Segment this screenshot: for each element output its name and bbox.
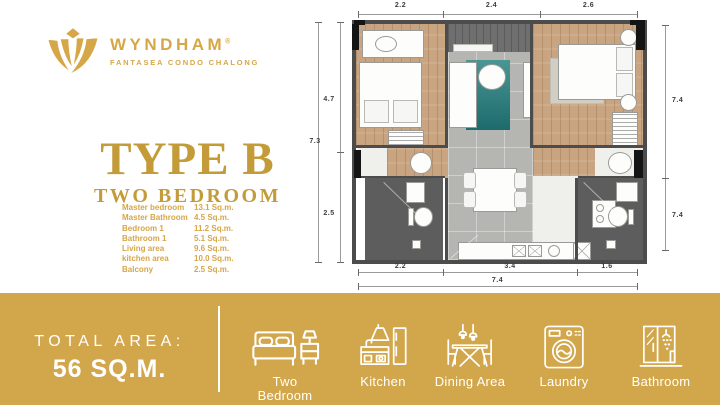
dimension-tick [662,25,669,26]
dimension-tick [337,262,344,263]
dim-top: 2.6 [540,2,637,9]
wall [445,178,448,264]
floor-plan: 2.2 2.4 2.6 7.3 4.7 2.5 7.4 7.4 2.2 3.4 … [300,0,718,295]
wall-black-segment [354,150,361,178]
dim-left-total: 7.3 [300,138,330,145]
dim-left: 4.7 [316,96,342,103]
feature-label: Laundry [539,375,588,389]
dimension-tick [662,178,669,179]
dimension-tick [358,283,359,290]
feature-label: Kitchen [360,375,405,389]
feature-label: Dining Area [435,375,506,389]
feature-laundry: Laundry [519,323,609,389]
dimension-line [358,14,637,15]
dim-right: 7.4 [672,212,702,219]
shower-icon [637,323,685,371]
kitchen-icon [356,323,411,371]
feature-bathroom: Bathroom [616,323,706,389]
dimension-line [358,272,637,273]
feature-label: Two Bedroom [248,375,322,404]
dimension-line [340,22,341,262]
room-row: Master bedroom13.1 Sq.m. [122,203,272,213]
wall [352,176,445,178]
feature-label: Bathroom [632,375,691,389]
washing-machine-icon [540,323,588,371]
footer-band: TOTAL AREA: 56 SQ.M. Two Bedroom [0,293,720,405]
wall [530,20,533,148]
wall [445,20,448,148]
dimension-tick [637,283,638,290]
dimension-tick [443,11,444,18]
room-row: Master Bathroom4.5 Sq.m. [122,213,272,223]
unit-heading: TYPE B TWO BEDROOM [80,136,295,208]
room-row: Living area9.6 Sq.m. [122,244,272,254]
wall [575,178,578,260]
feature-kitchen: Kitchen [338,323,428,389]
brand-subtitle: FANTASEA CONDO CHALONG [110,58,259,67]
dining-area-icon [444,323,495,371]
wall-black-segment [634,150,643,178]
divider [218,306,220,392]
dimension-tick [358,11,359,18]
wall-black-segment [354,20,365,25]
unit-type-title: TYPE B [80,136,295,183]
dimension-tick [337,22,344,23]
brand-text: WYNDHAM® FANTASEA CONDO CHALONG [110,35,259,67]
wall [352,145,448,148]
dim-bottom-total: 7.4 [358,277,637,284]
dimension-line [665,25,666,250]
dim-right: 7.4 [672,97,702,104]
wall-black-segment [630,20,642,25]
wall [533,145,647,148]
room-row: kitchen area10.0 Sq.m. [122,254,272,264]
dimension-tick [662,250,669,251]
wall-black-segment [352,24,359,50]
dimension-tick [358,269,359,276]
brand-logo: WYNDHAM® FANTASEA CONDO CHALONG [46,26,259,76]
poster: WYNDHAM® FANTASEA CONDO CHALONG TYPE B T… [0,0,720,405]
dimension-line [358,286,637,287]
bed-icon [245,323,324,371]
room-row: Bedroom 111.2 Sq.m. [122,224,272,234]
feature-two-bedroom: Two Bedroom [248,323,322,404]
total-area-value: 56 SQ.M. [22,355,197,384]
dimension-tick [315,262,322,263]
total-area: TOTAL AREA: 56 SQ.M. [22,333,197,384]
room-row: Balcony2.5 Sq.m. [122,265,272,275]
dimension-tick [315,22,322,23]
wyndham-logo-icon [46,26,100,76]
dimension-tick [337,152,344,153]
dimension-tick [443,269,444,276]
dim-bottom: 3.4 [443,263,577,270]
brand-name: WYNDHAM® [110,35,259,55]
room-row: Bathroom 15.1 Sq.m. [122,234,272,244]
dim-left: 2.5 [316,210,342,217]
room-area-list: Master bedroom13.1 Sq.m. Master Bathroom… [122,203,272,275]
feature-dining-area: Dining Area [425,323,515,389]
registered-mark: ® [225,38,230,45]
dim-top: 2.2 [358,2,443,9]
dimension-tick [637,11,638,18]
dim-bottom: 2.2 [358,263,443,270]
dimension-tick [577,269,578,276]
dimension-tick [540,11,541,18]
outer-wall [352,20,647,264]
dim-bottom: 1.6 [577,263,637,270]
total-area-label: TOTAL AREA: [22,333,197,351]
dim-top: 2.4 [443,2,540,9]
dimension-tick [637,269,638,276]
